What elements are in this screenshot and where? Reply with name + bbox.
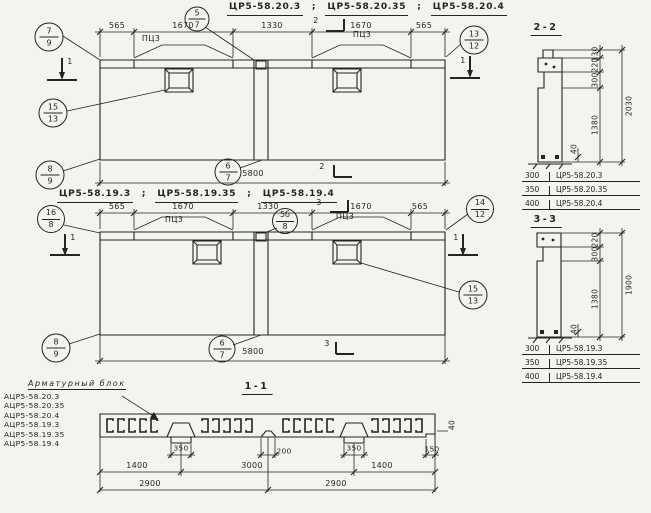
drawing-linework: [0, 0, 651, 513]
legend-item: АЦР5-58.20.3: [4, 392, 65, 401]
table-row: 350 ЦР5-58.20.35: [522, 182, 640, 196]
table-row: 400 ЦР5-58.20.4: [522, 196, 640, 210]
dim-label: 2900: [325, 480, 347, 488]
callout-balloon: 14 12: [466, 195, 494, 223]
section-1-1-label: 1-1: [242, 381, 273, 395]
callout-bottom: 13: [43, 114, 62, 124]
dim-label: 1330: [261, 22, 283, 30]
separator: ;: [312, 2, 316, 16]
separator: ;: [142, 189, 146, 203]
callout-top: 5: [189, 9, 206, 20]
callout-balloon: 13 12: [460, 26, 489, 55]
callout-bottom: 12: [471, 210, 490, 220]
callout-top: 5б: [276, 211, 293, 222]
dim-label: 1380: [591, 115, 599, 135]
panel-mark: ЦР5-58.20.35: [549, 186, 607, 196]
dim-label: 1330: [257, 203, 279, 211]
callout-balloon: 6 7: [209, 336, 236, 363]
section-2-2-label: 2-2: [531, 22, 562, 36]
dim-label: 3000: [241, 462, 263, 470]
dim-label-overall: 2030: [625, 96, 633, 116]
dim-label-overall: 1900: [625, 275, 633, 295]
legend-item: АЦР5-58.19.4: [4, 439, 65, 448]
dim-label: 565: [109, 22, 125, 30]
panel-elevation-1: [47, 19, 480, 186]
thickness-value: 350: [522, 186, 549, 196]
callout-top: 16: [42, 209, 61, 220]
dim-label: 565: [412, 203, 428, 211]
panel-mark: ЦР5-58.19.3: [57, 189, 133, 203]
dim-label-overall: 5800: [242, 348, 264, 356]
cut-mark-label: 2: [313, 17, 318, 25]
dim-label: 565: [109, 203, 125, 211]
cut-mark-label: 1: [70, 234, 75, 242]
callout-balloon: 15 13: [39, 99, 68, 128]
callout-top: 13: [464, 30, 483, 41]
panel-mark: ЦР5-58.19.35: [549, 359, 607, 369]
dim-label: 1670: [350, 203, 372, 211]
callout-bottom: 9: [39, 38, 58, 48]
cut-mark-label: 1: [67, 58, 72, 66]
dim-label: 300: [591, 72, 599, 87]
thickness-value: 400: [522, 373, 549, 383]
thickness-value: 400: [522, 200, 549, 210]
dim-label: 40: [570, 144, 578, 154]
callout-bottom: 8: [42, 220, 61, 230]
section-3-3-table: 300 ЦР5-58.19.3 350 ЦР5-58.19.35 400 ЦР5…: [522, 341, 640, 383]
dim-label: 1400: [371, 462, 393, 470]
legend-title: Арматурный блок: [28, 379, 126, 390]
plate-label: ПЦ3: [142, 35, 160, 43]
panel-mark: ЦР5-58.20.4: [549, 200, 602, 210]
callout-bottom: 8: [276, 222, 293, 232]
plate-label: ПЦ3: [353, 31, 371, 39]
callout-top: 6: [219, 162, 237, 173]
callout-top: 8: [46, 338, 65, 349]
callout-bottom: 7: [213, 350, 231, 360]
cut-mark-label: 3: [316, 199, 321, 207]
elevation-1-title: ЦР5-58.20.3; ЦР5-58.20.35; ЦР5-58.20.4: [227, 2, 507, 16]
dim-label: 565: [416, 22, 432, 30]
callout-balloon: 5б 8: [272, 208, 298, 234]
panel-mark: ЦР5-58.19.3: [549, 345, 602, 355]
dim-label: 40: [448, 420, 456, 430]
callout-bottom: 9: [46, 349, 65, 359]
callout-balloon: 5 7: [185, 7, 210, 32]
callout-bottom: 13: [463, 296, 482, 306]
dim-label: 300: [591, 246, 599, 261]
elevation-2-title: ЦР5-58.19.3; ЦР5-58.19.35; ЦР5-58.19.4: [57, 189, 337, 203]
panel-mark: ЦР5-58.19.4: [549, 373, 602, 383]
callout-balloon: 7 9: [35, 23, 64, 52]
callout-balloon: 15 13: [459, 281, 488, 310]
callout-top: 15: [463, 285, 482, 296]
legend-item: АЦР5-58.20.4: [4, 411, 65, 420]
panel-mark: ЦР5-58.20.4: [431, 2, 507, 16]
dim-label: 350: [346, 444, 361, 451]
dim-label: 1670: [172, 203, 194, 211]
cut-mark-label: 1: [453, 234, 458, 242]
callout-top: 6: [213, 339, 231, 350]
dim-label: 1670: [350, 22, 372, 30]
callout-balloon: 16 8: [37, 205, 65, 233]
table-row: 350 ЦР5-58.19.35: [522, 355, 640, 369]
callout-bottom: 7: [219, 173, 237, 183]
legend-items: АЦР5-58.20.3 АЦР5-58.20.35 АЦР5-58.20.4 …: [4, 392, 65, 448]
callout-top: 8: [40, 165, 59, 176]
thickness-value: 300: [522, 172, 549, 182]
section-3-3-label: 3-3: [531, 214, 562, 228]
callout-bottom: 12: [464, 41, 483, 51]
cut-mark-label: 3: [324, 340, 329, 348]
dim-label: 150: [424, 445, 439, 452]
plate-label: ПЦ3: [165, 216, 183, 224]
dim-label: 1400: [126, 462, 148, 470]
callout-balloon: 6 7: [215, 159, 242, 186]
legend-item: АЦР5-58.19.3: [4, 420, 65, 429]
dim-label: 220: [591, 232, 599, 247]
cut-mark-label: 2: [319, 163, 324, 171]
dim-label: 40: [570, 324, 578, 334]
thickness-value: 350: [522, 359, 549, 369]
table-row: 400 ЦР5-58.19.4: [522, 369, 640, 383]
callout-balloon: 8 9: [42, 334, 71, 363]
dim-label: 220: [591, 57, 599, 72]
dim-label-overall: 5800: [242, 170, 264, 178]
panel-mark: ЦР5-58.19.35: [155, 189, 238, 203]
callout-top: 15: [43, 103, 62, 114]
callout-top: 7: [39, 27, 58, 38]
panel-mark: ЦР5-58.19.4: [261, 189, 337, 203]
panel-mark: ЦР5-58.20.3: [549, 172, 602, 182]
callout-bottom: 7: [189, 20, 206, 30]
table-row: 300 ЦР5-58.20.3: [522, 168, 640, 182]
callout-bottom: 9: [40, 176, 59, 186]
drawing-sheet: ЦР5-58.20.3; ЦР5-58.20.35; ЦР5-58.20.4 5…: [0, 0, 651, 513]
panel-mark: ЦР5-58.20.3: [227, 2, 303, 16]
legend-item: АЦР5-58.19.35: [4, 430, 65, 439]
section-2-2-table: 300 ЦР5-58.20.3 350 ЦР5-58.20.35 400 ЦР5…: [522, 168, 640, 210]
dim-label: 2900: [139, 480, 161, 488]
dim-label: 200: [276, 447, 291, 454]
callout-top: 14: [471, 199, 490, 210]
cut-mark-label: 1: [460, 57, 465, 65]
table-row: 300 ЦР5-58.19.3: [522, 341, 640, 355]
plate-label: ПЦ3: [336, 213, 354, 221]
legend-item: АЦР5-58.20.35: [4, 401, 65, 410]
thickness-value: 300: [522, 345, 549, 355]
dim-label: 1380: [591, 289, 599, 309]
separator: ;: [417, 2, 421, 16]
panel-mark: ЦР5-58.20.35: [325, 2, 408, 16]
panel-elevation-2: [50, 200, 478, 364]
separator: ;: [247, 189, 251, 203]
dim-label: 350: [173, 444, 188, 451]
callout-balloon: 8 9: [36, 161, 65, 190]
